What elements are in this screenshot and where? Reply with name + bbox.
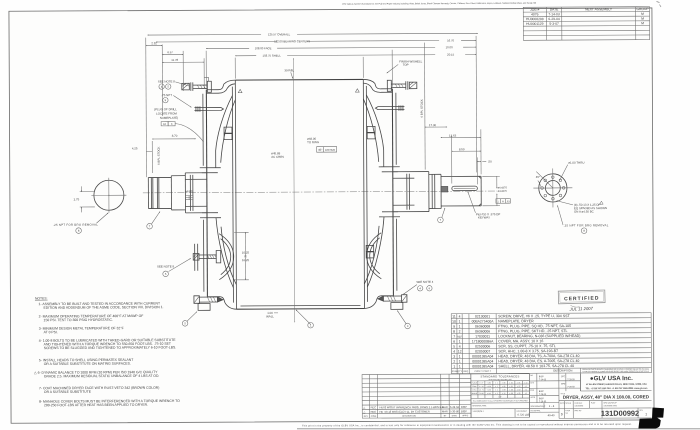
svg-text:JUL 11 2007: JUL 11 2007 <box>568 306 593 312</box>
svg-text:SCREWS TO BE SLUGGED AND TIGHT: SCREWS TO BE SLUGGED AND TIGHTENED TO AP… <box>44 345 177 350</box>
svg-text:7-28-03: 7-28-03 <box>539 400 547 403</box>
svg-text:17030011: 17030011 <box>475 334 490 338</box>
svg-text:DE SCP/PNL: DE SCP/PNL <box>531 409 541 412</box>
svg-text:6 BPL STOCK: 6 BPL STOCK <box>157 146 161 165</box>
svg-text:.75 NPT: .75 NPT <box>161 93 172 97</box>
svg-text:06360006: 06360006 <box>475 329 490 333</box>
svg-text:5: 5 <box>453 345 455 349</box>
svg-text:NAMEPLATE, DRYER: NAMEPLATE, DRYER <box>498 319 534 323</box>
svg-text:REC: REC <box>371 411 377 414</box>
svg-text:11: 11 <box>452 315 456 319</box>
svg-text:6.57: 6.57 <box>167 50 173 54</box>
svg-text:SCR, HHC, 1.00-8 X 3.75, SA-19: SCR, HHC, 1.00-8 X 3.75, SA-193-B7 <box>498 349 558 353</box>
svg-text:COVER, MH, ASSY, 10 X 16: COVER, MH, ASSY, 10 X 16 <box>498 339 543 343</box>
svg-text:NOTES:: NOTES: <box>35 297 48 301</box>
svg-text:2: 2 <box>459 330 461 334</box>
svg-text:16.25: 16.25 <box>242 258 250 262</box>
svg-text:1807A30: 1807A30 <box>325 149 336 152</box>
svg-text:FTNG, PLUG, PIPE, SKT HD, .25: FTNG, PLUG, PIPE, SKT HD, .25 NPT, STL <box>498 329 567 333</box>
svg-text:1: 1 <box>459 360 461 364</box>
svg-text:47 ALLEN STREET, HUDSON FALLS,: 47 ALLEN STREET, HUDSON FALLS, NEW YORK,… <box>586 383 647 386</box>
svg-text:TOP: TOP <box>403 63 409 67</box>
svg-text:KEYWAY: KEYWAY <box>478 215 490 219</box>
svg-text:2.32: 2.32 <box>151 41 157 45</box>
svg-text:MAR: MAR <box>442 410 448 413</box>
svg-text:PLOT: PLOT <box>591 402 595 405</box>
svg-text:TO RING: TO RING <box>307 140 320 144</box>
svg-text:REC: REC <box>371 406 377 409</box>
svg-text:0.725 LBS: 0.725 LBS <box>518 414 530 417</box>
svg-text:00001385A04: 00001385A04 <box>472 354 493 358</box>
svg-text:JOB #: JOB # <box>530 8 539 12</box>
svg-text:ITEM: ITEM <box>452 370 457 373</box>
svg-text:BISP: BISP <box>539 397 544 400</box>
svg-text:AC CRES: AC CRES <box>271 155 284 159</box>
svg-text:OR A SUITABLE SUBSTITUTE: OR A SUITABLE SUBSTITUTE <box>44 390 92 394</box>
svg-text:SEE NOTE 8: SEE NOTE 8 <box>157 264 174 268</box>
svg-text:△: △ <box>363 411 365 414</box>
svg-text:△: △ <box>363 406 365 409</box>
svg-text:7-28-03: 7-28-03 <box>539 393 547 396</box>
svg-text:8.70: 8.70 <box>172 134 178 138</box>
svg-text:NEXT ASSEMBLY: NEXT ASSEMBLY <box>585 7 613 11</box>
svg-text:BISP: BISP <box>539 390 544 393</box>
svg-text:TEL. +1 518 747 2661 FAX. +1: TEL. +1 518 747 2661 FAX. +1 518 747 158… <box>585 387 647 390</box>
svg-text:BISP: BISP <box>461 410 467 413</box>
svg-text:APPR: APPR <box>530 396 535 399</box>
svg-text:11.78: 11.78 <box>171 58 178 62</box>
svg-text:7-28-03: 7-28-03 <box>567 385 575 388</box>
svg-text:HEAD, DRYER, 48 DIA, TS, A-700: HEAD, DRYER, 48 DIA, TS, A-700A, SA-278 … <box>498 354 579 358</box>
svg-text:40-40: 40-40 <box>548 414 555 417</box>
svg-text:2.75: 2.75 <box>74 197 80 201</box>
svg-text:02500006: 02500006 <box>475 344 490 348</box>
svg-text:12: 12 <box>458 350 462 354</box>
svg-text:39 R&L: 39 R&L <box>284 68 294 72</box>
svg-text:REV: REV <box>364 415 369 418</box>
svg-text:20.15: 20.15 <box>447 53 454 57</box>
svg-text:8.50: 8.50 <box>459 147 465 151</box>
svg-text:02050007: 02050007 <box>475 349 490 353</box>
svg-text:ø1.00 THRU: ø1.00 THRU <box>568 161 584 165</box>
svg-text:●GLV USA Inc.: ●GLV USA Inc. <box>590 375 633 382</box>
svg-text:1 - 4: 1 - 4 <box>549 405 555 408</box>
svg-text:LBS WEIGHT: LBS WEIGHT <box>517 410 527 413</box>
svg-text:MAR: MAR <box>442 406 448 409</box>
svg-text:6-29-04: 6-29-04 <box>450 406 460 409</box>
svg-text:AT 0 PSI.: AT 0 PSI. <box>44 330 58 334</box>
svg-text:SPM W/BACKUP: SPM W/BACKUP <box>603 401 617 404</box>
svg-text:SCREW, DRIVE, #6 X .25, TYPE U: SCREW, DRIVE, #6 X .25, TYPE U, 304 SST <box>498 314 570 318</box>
svg-text:5-3-07: 5-3-07 <box>549 22 559 26</box>
svg-text:1: 1 <box>453 365 455 369</box>
svg-text:00001385A04: 00001385A04 <box>472 359 493 363</box>
svg-text:131D00992.DWG: 131D00992.DWG <box>603 404 617 407</box>
svg-text:200-250 FOOT-LBS AFTER HEAT HA: 200-250 FOOT-LBS AFTER HEAT HAS BEEN APP… <box>44 403 148 408</box>
svg-text:HE .50-13 WAS (ELEV-11, BY CUS: HE .50-13 WAS (ELEV-11, BY CUSTOMER <box>380 410 430 413</box>
svg-text:131D00992: 131D00992 <box>574 404 583 407</box>
svg-text:ø4.625: ø4.625 <box>185 190 194 193</box>
svg-text:.25 NPT FOR BRG REMOVAL: .25 NPT FOR BRG REMOVAL <box>564 223 609 227</box>
svg-text:NAMEPLATE): NAMEPLATE) <box>160 116 178 120</box>
svg-text:FTNG, PLUG, PIPE, SQ HD, .75 N: FTNG, PLUG, PIPE, SQ HD, .75 NPT, SA-105 <box>498 324 571 328</box>
svg-text:GROUP: GROUP <box>636 7 649 11</box>
svg-text:PWG # / PART #: PWG # / PART # <box>475 370 492 373</box>
svg-text:00001385A04: 00001385A04 <box>472 364 493 368</box>
svg-text:1: 1 <box>459 325 461 329</box>
svg-text:DATE: DATE <box>550 8 559 12</box>
svg-text:CFC: CFC <box>561 375 566 378</box>
svg-text:BISP: BISP <box>539 375 544 378</box>
svg-text:2: 2 <box>453 360 455 364</box>
svg-text:7: 7 <box>453 335 455 339</box>
svg-text:SCALE: SCALE <box>565 402 571 405</box>
svg-text:17180000B6A: 17180000B6A <box>472 339 494 343</box>
svg-text:BISP: BISP <box>461 406 467 409</box>
svg-text:CERTIFIED: CERTIFIED <box>564 296 600 303</box>
svg-text:1: 1 <box>459 355 461 359</box>
svg-text:OR A SUITABLE SUBSTITUTE ON MA: OR A SUITABLE SUBSTITUTE ON MATING SURFA… <box>44 362 131 366</box>
svg-text:SPM W/BACKUP: SPM W/BACKUP <box>530 405 545 408</box>
svg-text:131D00992: 131D00992 <box>601 409 639 418</box>
svg-text:⊥: ⊥ <box>497 200 499 203</box>
svg-text:DESCRIPTION: DESCRIPTION <box>553 368 572 372</box>
svg-text:122.00 BEARING CENTERS: 122.00 BEARING CENTERS <box>274 39 310 43</box>
svg-text:M: M <box>641 21 644 25</box>
svg-text:7-14-03: 7-14-03 <box>539 378 547 381</box>
svg-text:06360008: 06360008 <box>475 324 490 328</box>
svg-text:ON A ø4.50 BC: ON A ø4.50 BC <box>574 210 594 214</box>
svg-text:1: 1 <box>459 365 461 369</box>
svg-text:APP'D: APP'D <box>462 414 468 417</box>
svg-text:M: M <box>641 12 644 16</box>
svg-text:SCR, SS, CUPPT, .75-10 X .75,: SCR, SS, CUPPT, .75-10 X .75, STL <box>498 344 556 348</box>
svg-text:45°: 45° <box>536 175 540 179</box>
svg-text:.25 NPT FOR BRG REMOVAL: .25 NPT FOR BRG REMOVAL <box>53 223 98 227</box>
svg-text:M: M <box>641 17 644 21</box>
svg-text:17.30: 17.30 <box>429 123 437 127</box>
svg-text:ø4.4370: ø4.4370 <box>498 190 508 193</box>
svg-text:7-14-03: 7-14-03 <box>548 12 560 16</box>
svg-text:10.00: 10.00 <box>446 45 453 49</box>
svg-text:EDITION AND ADDENDUM OF THE AS: EDITION AND ADDENDUM OF THE ASME CODE, S… <box>43 305 163 310</box>
svg-text:1: 1 <box>459 340 461 344</box>
svg-text:CAD REF:: CAD REF: <box>574 402 582 405</box>
svg-text:45°: 45° <box>318 148 322 152</box>
svg-text:GRADE 2.5. MAXIMUM RESIDUAL ST: GRADE 2.5. MAXIMUM RESIDUAL STATIC UNBAL… <box>44 374 160 379</box>
svg-text:SEE NOTE 8: SEE NOTE 8 <box>158 79 175 83</box>
svg-text:SEE NOTE 4: SEE NOTE 4 <box>416 280 433 284</box>
svg-text:6: 6 <box>453 340 455 344</box>
svg-text:10: 10 <box>163 123 167 126</box>
svg-text:ZONE: ZONE <box>371 415 377 418</box>
svg-text:WALL: WALL <box>266 314 274 318</box>
svg-text:108.00 FACE: 108.00 FACE <box>255 46 272 50</box>
svg-text:10: 10 <box>452 320 456 324</box>
svg-text:QT'Y: QT'Y <box>457 370 462 373</box>
svg-text:.50: .50 <box>488 159 492 163</box>
svg-text:16.70: 16.70 <box>447 38 454 42</box>
svg-text:9: 9 <box>453 325 455 329</box>
svg-text:4076: 4076 <box>531 12 539 16</box>
svg-text:3: 3 <box>453 355 455 359</box>
svg-text:00BA275400A: 00BA275400A <box>472 319 495 323</box>
svg-text:1: 1 <box>459 320 461 324</box>
svg-text:1.012(S)P6.1: 1.012(S)P6.1 <box>473 410 484 413</box>
svg-text:DATE: DATE <box>452 414 458 417</box>
svg-text:7-28-03: 7-28-03 <box>567 378 575 381</box>
svg-text:HU0008298: HU0008298 <box>526 17 544 21</box>
svg-text:6 BPL STOCK: 6 BPL STOCK <box>420 99 424 118</box>
svg-text:02130001: 02130001 <box>475 314 490 318</box>
svg-text:REF: REF <box>457 336 463 339</box>
svg-text:LOCKNUT, BEARING, N-036 (SUPPL: LOCKNUT, BEARING, N-036 (SUPPLIED W/HEAD… <box>498 334 580 338</box>
svg-text:STANDARD TOLERANCES: STANDARD TOLERANCES <box>480 375 519 378</box>
svg-text:HU0001129: HU0001129 <box>526 22 544 26</box>
svg-text:HU03 W/OUT W/WRENCH PADS, DRWS: HU03 W/OUT W/WRENCH PADS, DRWS 2.5 WKS B… <box>380 406 445 409</box>
svg-text:CPD: CPD <box>561 382 566 385</box>
svg-text:Y14.5M-1994. REMOVE ALL BURRS: Y14.5M-1994. REMOVE ALL BURRS AND SHARP … <box>582 370 649 373</box>
svg-text:DRYER, ASSY, 48″ DIA X 108.00,: DRYER, ASSY, 48″ DIA X 108.00, CORED <box>563 394 650 399</box>
svg-text:5-30-80: 5-30-80 <box>450 410 460 413</box>
svg-text:REQ: REQ <box>463 370 468 373</box>
svg-text:DFTG: DFTG <box>560 402 565 405</box>
svg-text:103.75 SHELL: 103.75 SHELL <box>263 54 282 58</box>
svg-text:4: 4 <box>459 345 461 349</box>
svg-text:150 PSI. TEST TO 300 PSIG HYDR: 150 PSI. TEST TO 300 PSIG HYDROSTATIC. <box>44 318 113 322</box>
svg-text:DESCRIPTION: DESCRIPTION <box>402 415 416 418</box>
svg-text:MATERIAL AND:: MATERIAL AND: <box>472 404 487 407</box>
svg-text:8: 8 <box>453 330 455 334</box>
svg-text:4.25: 4.25 <box>132 146 138 150</box>
svg-text:HEAD, DRYER, 48 DIA, ES, A-700: HEAD, DRYER, 48 DIA, ES, A-7005, SA-278 … <box>498 359 579 363</box>
svg-text:4: 4 <box>459 315 461 319</box>
svg-text:4: 4 <box>453 350 455 354</box>
svg-text:6-29-04: 6-29-04 <box>548 17 560 21</box>
svg-text:12.63: 12.63 <box>449 134 457 138</box>
svg-text:125.57 OVERALL: 125.57 OVERALL <box>268 32 291 36</box>
